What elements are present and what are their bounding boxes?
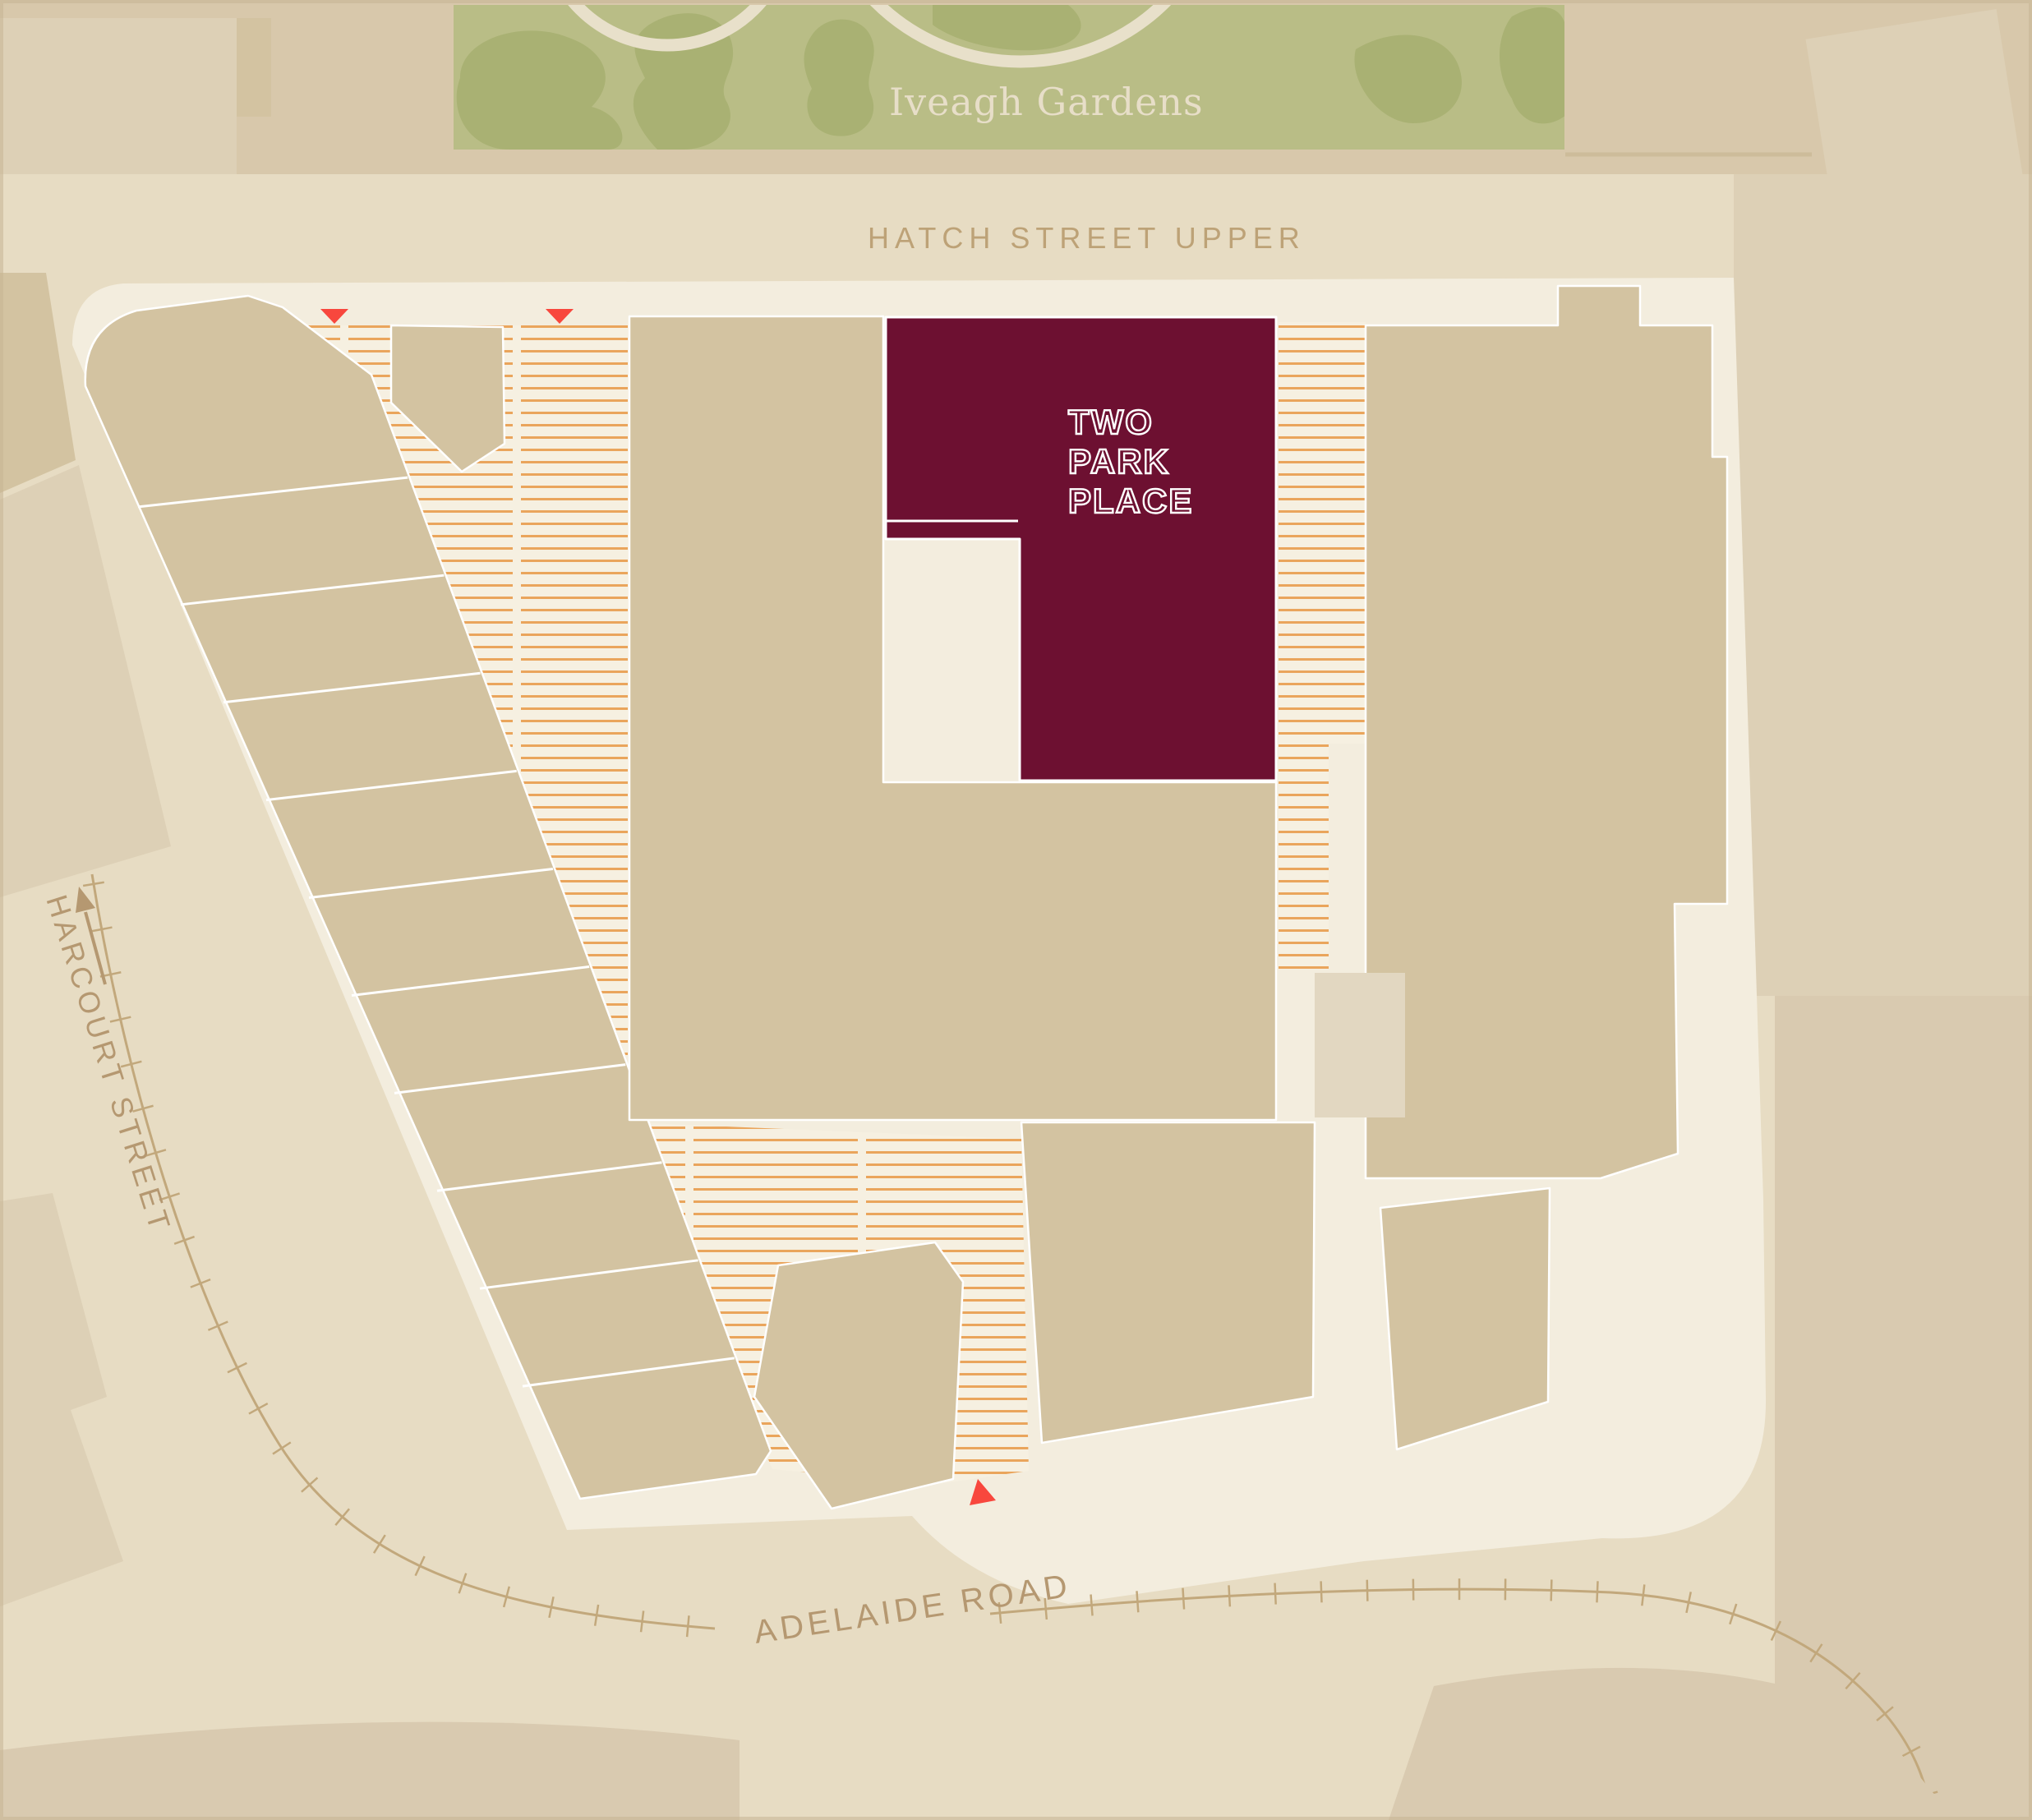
north-west-block-sliver — [237, 18, 271, 117]
tram-tick — [1228, 1585, 1229, 1606]
tram-tick — [1551, 1579, 1552, 1601]
two-park-place-building: TWO PARK PLACE — [886, 317, 1276, 781]
tram-tick — [1182, 1588, 1184, 1610]
site-map-page: Iveagh Gardens TWO PARK PLA — [0, 0, 2032, 1820]
tram-tick — [1597, 1581, 1597, 1602]
building-name-line3: PLACE — [1068, 481, 1193, 520]
building-name-line1: TWO — [1068, 403, 1154, 441]
tram-tick — [1367, 1580, 1368, 1601]
tram-tick — [1275, 1583, 1276, 1605]
iveagh-gardens: Iveagh Gardens — [454, 0, 1566, 150]
garden-lawn-blob — [804, 20, 873, 136]
south-east-building — [1380, 1188, 1550, 1449]
east-court-square — [1315, 973, 1405, 1117]
street-label-hatch-street-upper: HATCH STREET UPPER — [868, 221, 1306, 255]
courtyard — [887, 540, 1018, 780]
tram-tick — [1321, 1581, 1322, 1602]
south-building — [1021, 1122, 1315, 1443]
east-building — [1366, 286, 1727, 1178]
site-map: Iveagh Gardens TWO PARK PLA — [0, 0, 2032, 1820]
park-label: Iveagh Gardens — [889, 80, 1204, 124]
east-block-band — [1734, 174, 2032, 996]
north-west-block — [0, 18, 237, 174]
building-name-line2: PARK — [1068, 442, 1170, 481]
